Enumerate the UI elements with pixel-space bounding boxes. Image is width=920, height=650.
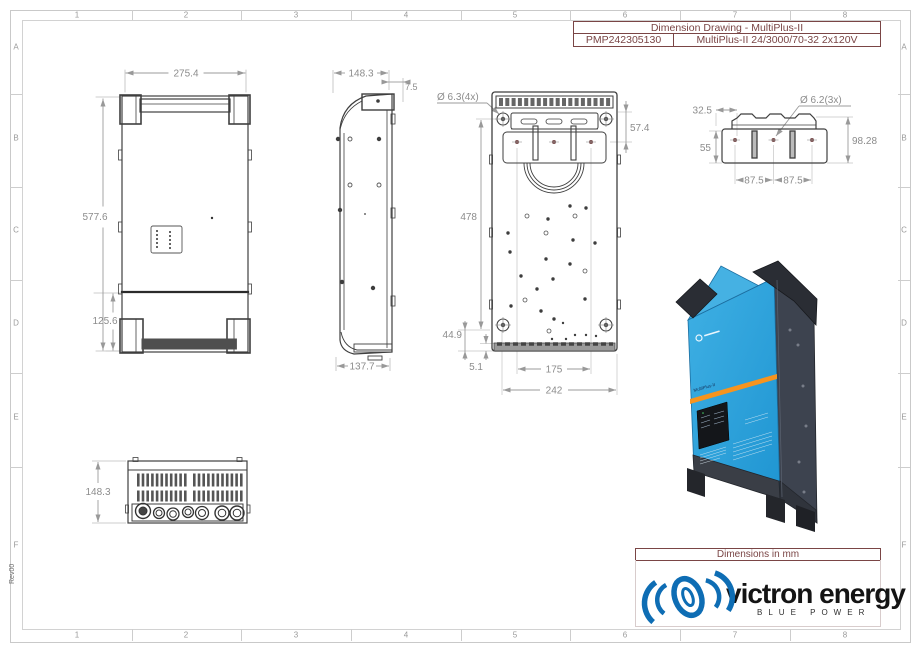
dim-back-hole-width: 175 [546,365,563,376]
front-view: 275.4 577.6 125.6 [82,69,251,354]
top-view: 32.5 55 Ø 6.2(3x) 98.28 87.5 87.5 [693,95,878,187]
side-view: 148.3 7.5 137.7 [333,69,418,373]
dim-top-plate-depth: 55 [700,143,712,154]
dim-back-overall-width: 242 [546,386,563,397]
dim-top-side-offset: 32.5 [693,106,713,117]
dim-top-overall-depth: 98.28 [852,136,877,147]
dim-bottom-depth: 148.3 [85,487,110,498]
mounting-screws [495,111,614,333]
dim-top-hole-pitch-a: 87.5 [744,176,764,187]
dim-back-bracket-offset: 57.4 [630,123,650,134]
dim-top-hole-pitch-b: 87.5 [783,176,803,187]
dim-side-bottom-depth: 137.7 [349,362,374,373]
dim-back-bottom-offset: 44.9 [443,330,463,341]
dim-front-width: 275.4 [173,69,198,80]
victron-logo-mark [641,569,735,624]
front-led-panel [156,217,213,249]
dim-top-hole-note: Ø 6.2(3x) [800,95,842,106]
dim-front-bottom-section: 125.6 [92,316,117,327]
dimension-drawing-page: { "frame": { "columns": ["1","2","3","4"… [0,0,920,650]
dim-side-depth: 148.3 [348,69,373,80]
cable-glands [136,504,245,521]
dim-back-hole-note: Ø 6.3(4x) [437,92,479,103]
technical-drawing: 275.4 577.6 125.6 [0,0,920,650]
dim-back-base-offset: 5.1 [469,362,483,373]
bottom-view: 148.3 [85,458,250,524]
product-render: MultiPlus-II [676,261,817,532]
dim-back-hole-height: 478 [460,212,477,223]
dim-front-height: 577.6 [82,212,107,223]
back-view: Ø 6.3(4x) 57.4 478 44.9 5.1 175 242 [437,92,650,397]
dim-side-top-offset: 7.5 [405,82,418,92]
